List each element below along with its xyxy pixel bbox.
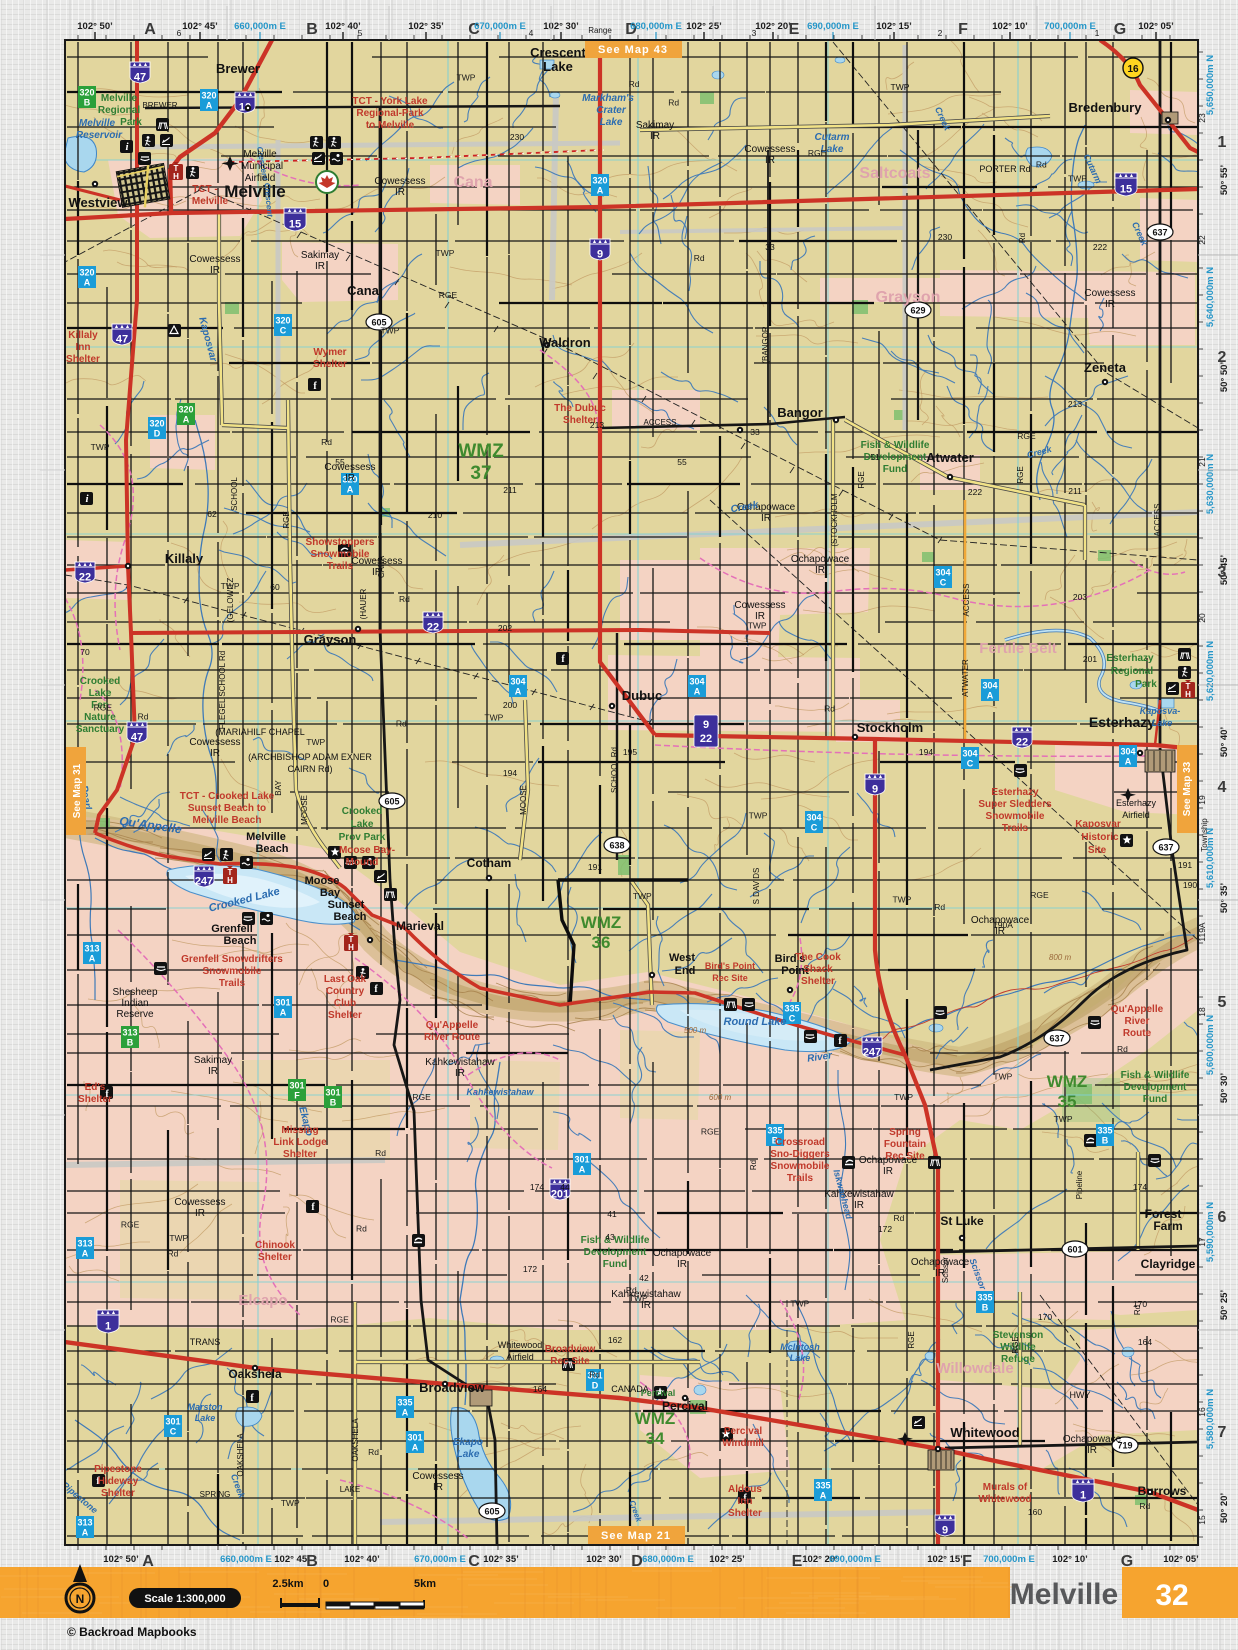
svg-text:TWP: TWP <box>1054 1114 1073 1124</box>
svg-text:23: 23 <box>1197 113 1207 123</box>
svg-text:Grenfell Snowdrifters: Grenfell Snowdrifters <box>181 954 283 965</box>
svg-text:HWY: HWY <box>1070 1390 1091 1400</box>
svg-text:SPRING: SPRING <box>200 1490 231 1499</box>
svg-text:301: 301 <box>275 998 290 1008</box>
svg-text:St Luke: St Luke <box>940 1214 984 1228</box>
svg-text:Trails: Trails <box>787 1173 814 1184</box>
svg-text:Esterhazy: Esterhazy <box>1116 798 1157 808</box>
svg-text:Lake: Lake <box>195 1413 216 1423</box>
svg-text:Cotham: Cotham <box>467 856 512 870</box>
svg-text:605: 605 <box>484 1507 499 1517</box>
svg-text:22: 22 <box>1016 737 1028 749</box>
svg-text:102° 50’: 102° 50’ <box>77 21 113 32</box>
svg-text:Sakimay: Sakimay <box>636 120 674 131</box>
svg-text:C: C <box>940 578 947 588</box>
svg-text:Fund: Fund <box>1143 1094 1167 1105</box>
svg-text:IR: IR <box>315 261 325 272</box>
svg-text:Rd: Rd <box>396 718 407 728</box>
svg-text:Trails: Trails <box>327 561 354 572</box>
svg-text:A: A <box>694 687 701 697</box>
svg-text:Rd: Rd <box>356 1224 367 1234</box>
svg-text:174: 174 <box>530 1182 544 1192</box>
svg-text:162: 162 <box>608 1335 622 1345</box>
svg-text:50° 25’: 50° 25’ <box>1219 1290 1230 1320</box>
svg-text:Rd: Rd <box>1139 1501 1150 1511</box>
svg-text:6: 6 <box>177 28 182 38</box>
svg-text:Grayson: Grayson <box>876 289 941 306</box>
svg-text:0: 0 <box>323 1578 329 1590</box>
svg-text:Cana: Cana <box>453 174 492 191</box>
svg-text:(HAUER: (HAUER <box>359 588 368 619</box>
svg-text:TWP: TWP <box>169 1233 188 1243</box>
svg-text:Cowessess: Cowessess <box>189 737 240 748</box>
svg-text:Airfield: Airfield <box>245 173 276 184</box>
svg-text:McIntosh: McIntosh <box>780 1342 820 1352</box>
svg-text:River: River <box>1124 1016 1149 1027</box>
svg-text:Whitewood: Whitewood <box>950 1425 1019 1440</box>
svg-text:TWP: TWP <box>633 891 652 901</box>
svg-text:638: 638 <box>609 841 624 851</box>
svg-text:9: 9 <box>942 1525 948 1537</box>
svg-text:SCHOOL: SCHOOL <box>230 477 239 511</box>
svg-text:Missing: Missing <box>281 1125 318 1136</box>
svg-text:A: A <box>89 954 96 964</box>
svg-text:Rec Site: Rec Site <box>550 1356 590 1367</box>
svg-text:Melville: Melville <box>1010 1578 1118 1611</box>
svg-text:50° 55’: 50° 55’ <box>1219 165 1230 195</box>
svg-text:Nature: Nature <box>84 712 116 723</box>
svg-text:304: 304 <box>689 677 704 687</box>
svg-text:700,000m E: 700,000m E <box>1044 21 1096 32</box>
svg-text:50° 40’: 50° 40’ <box>1219 727 1230 757</box>
svg-text:Cowessess: Cowessess <box>324 462 375 473</box>
svg-text:Sanctuary: Sanctuary <box>76 724 125 735</box>
svg-text:Shelter: Shelter <box>328 1010 362 1021</box>
svg-text:230: 230 <box>510 132 524 142</box>
svg-text:Crater: Crater <box>596 105 627 116</box>
svg-text:670,000m E: 670,000m E <box>414 1554 466 1565</box>
svg-text:Beach: Beach <box>255 843 288 855</box>
svg-text:TWP: TWP <box>993 1072 1012 1082</box>
svg-text:500 m: 500 m <box>684 1026 707 1035</box>
svg-text:Kahkewistahaw: Kahkewistahaw <box>425 1057 495 1068</box>
svg-text:Ochapowace: Ochapowace <box>653 1248 712 1259</box>
svg-text:A: A <box>820 1491 827 1501</box>
svg-text:F: F <box>958 21 968 38</box>
svg-text:Melville: Melville <box>101 93 138 104</box>
svg-text:ACCESS: ACCESS <box>962 584 971 617</box>
svg-text:Rd: Rd <box>694 253 705 263</box>
svg-text:Shack: Shack <box>803 964 833 975</box>
svg-text:Fish & Wildlife: Fish & Wildlife <box>1121 1070 1190 1081</box>
svg-text:H: H <box>227 876 233 885</box>
svg-text:SCHOOL Rd: SCHOOL Rd <box>610 747 619 793</box>
svg-text:Bay: Bay <box>320 887 341 899</box>
svg-text:Cowessess: Cowessess <box>734 600 785 611</box>
svg-text:47: 47 <box>116 334 128 346</box>
svg-text:Shelter: Shelter <box>101 1488 135 1499</box>
svg-text:660,000m E: 660,000m E <box>234 21 286 32</box>
svg-text:164: 164 <box>1138 1337 1152 1347</box>
svg-text:Aldous: Aldous <box>728 1484 762 1495</box>
svg-text:172: 172 <box>523 1264 537 1274</box>
svg-text:S DAVIDS: S DAVIDS <box>752 868 761 905</box>
svg-text:601: 601 <box>1067 1245 1082 1255</box>
svg-text:IR: IR <box>677 1259 687 1270</box>
svg-text:Melville: Melville <box>192 196 229 207</box>
svg-text:304: 304 <box>806 813 821 823</box>
svg-text:102° 05’: 102° 05’ <box>1163 1554 1199 1565</box>
svg-text:(ARCHBISHOP ADAM EXNER: (ARCHBISHOP ADAM EXNER <box>248 752 372 762</box>
svg-text:Burrows: Burrows <box>1138 1484 1187 1498</box>
svg-text:Qu'Appelle: Qu'Appelle <box>1111 1004 1164 1015</box>
svg-text:Percival: Percival <box>724 1426 763 1437</box>
svg-text:Lake: Lake <box>89 688 112 699</box>
svg-text:A: A <box>412 1443 419 1453</box>
svg-text:TWP: TWP <box>91 442 110 452</box>
svg-text:Lake: Lake <box>457 1449 480 1460</box>
svg-text:50° 30’: 50° 30’ <box>1219 1073 1230 1103</box>
svg-text:222: 222 <box>1093 242 1107 252</box>
svg-text:Dubuc: Dubuc <box>622 688 662 703</box>
svg-text:TWP: TWP <box>484 712 503 722</box>
svg-text:50° 35’: 50° 35’ <box>1219 883 1230 913</box>
svg-text:IR: IR <box>433 1482 443 1493</box>
svg-text:22: 22 <box>79 572 91 584</box>
svg-text:42: 42 <box>639 1273 649 1283</box>
svg-text:Regional: Regional <box>98 105 140 116</box>
svg-text:Shelter: Shelter <box>801 976 835 987</box>
svg-text:5,600,000m N: 5,600,000m N <box>1205 1015 1216 1075</box>
svg-text:Melville: Melville <box>224 182 285 201</box>
svg-text:IR: IR <box>455 1068 465 1079</box>
svg-text:2: 2 <box>1218 349 1227 366</box>
svg-text:Rec Site: Rec Site <box>712 973 748 983</box>
svg-text:Melville: Melville <box>246 831 286 843</box>
svg-text:50° 20’: 50° 20’ <box>1219 1493 1230 1523</box>
svg-text:Shelter: Shelter <box>283 1149 317 1160</box>
svg-text:Beach: Beach <box>333 911 366 923</box>
svg-text:BAY: BAY <box>274 780 283 796</box>
svg-text:RGE: RGE <box>94 703 113 713</box>
svg-text:RGE: RGE <box>412 1092 431 1102</box>
svg-text:15: 15 <box>289 219 301 231</box>
svg-text:F: F <box>294 1091 300 1101</box>
svg-text:WMZ: WMZ <box>635 1409 676 1428</box>
svg-text:Chinook: Chinook <box>255 1240 295 1251</box>
svg-text:47: 47 <box>131 732 143 744</box>
svg-text:D: D <box>592 1381 599 1391</box>
svg-text:5,650,000m N: 5,650,000m N <box>1205 55 1216 115</box>
svg-text:5km: 5km <box>414 1578 436 1590</box>
svg-text:Rd: Rd <box>749 1160 758 1170</box>
svg-text:160: 160 <box>1028 1507 1042 1517</box>
svg-text:222: 222 <box>968 487 982 497</box>
svg-text:B: B <box>330 1098 337 1108</box>
svg-text:Shelter: Shelter <box>78 1094 112 1105</box>
svg-text:Bird's Point: Bird's Point <box>705 961 755 971</box>
svg-text:Kahkewistahaw: Kahkewistahaw <box>466 1087 534 1097</box>
svg-text:203: 203 <box>1073 592 1087 602</box>
svg-text:Sunset: Sunset <box>328 899 365 911</box>
svg-text:B: B <box>84 98 91 108</box>
svg-text:B: B <box>1102 1136 1109 1146</box>
svg-text:TRANS: TRANS <box>190 1337 221 1347</box>
svg-text:Whitewood: Whitewood <box>498 1340 543 1350</box>
svg-text:335: 335 <box>977 1293 992 1303</box>
svg-text:62: 62 <box>207 509 217 519</box>
svg-text:Fund: Fund <box>603 1259 627 1270</box>
svg-text:Rd: Rd <box>668 98 679 108</box>
svg-text:A: A <box>82 1249 89 1259</box>
svg-text:5,580,000m N: 5,580,000m N <box>1205 1389 1216 1449</box>
svg-text:172: 172 <box>878 1224 892 1234</box>
svg-text:Rd: Rd <box>626 1285 637 1295</box>
svg-text:4: 4 <box>1218 779 1227 796</box>
svg-text:TWP: TWP <box>892 895 911 905</box>
svg-text:Esterhazy: Esterhazy <box>1089 714 1155 730</box>
svg-text:Farm: Farm <box>1153 1219 1182 1233</box>
svg-text:Reserve: Reserve <box>116 1009 154 1020</box>
svg-text:5: 5 <box>1218 994 1227 1011</box>
svg-text:Stockholm: Stockholm <box>857 720 923 735</box>
svg-text:102° 35’: 102° 35’ <box>483 1554 519 1565</box>
svg-text:Windmill: Windmill <box>722 1438 764 1449</box>
svg-text:51: 51 <box>870 452 880 462</box>
svg-text:Airfield: Airfield <box>1122 810 1150 820</box>
svg-text:102° 20’: 102° 20’ <box>755 21 791 32</box>
svg-text:320: 320 <box>79 268 94 278</box>
svg-text:194: 194 <box>919 747 933 757</box>
svg-text:70: 70 <box>80 647 90 657</box>
svg-text:TWP: TWP <box>790 1298 809 1308</box>
svg-text:Rd: Rd <box>934 902 945 912</box>
svg-text:Sno-Diggers: Sno-Diggers <box>770 1149 830 1160</box>
svg-text:Rd: Rd <box>375 1148 386 1158</box>
svg-text:Shesheep: Shesheep <box>112 987 157 998</box>
svg-text:Rec Site: Rec Site <box>885 1151 925 1162</box>
svg-text:Country: Country <box>326 986 365 997</box>
svg-text:Rd: Rd <box>138 712 149 722</box>
svg-text:Hideway: Hideway <box>98 1476 139 1487</box>
svg-text:(STOCKHOLM: (STOCKHOLM <box>830 493 839 547</box>
svg-text:304: 304 <box>510 677 525 687</box>
svg-text:Clayridge: Clayridge <box>1141 1257 1196 1271</box>
svg-text:CAIRN Rd): CAIRN Rd) <box>287 764 332 774</box>
svg-text:320: 320 <box>201 91 216 101</box>
svg-text:32: 32 <box>1155 1579 1188 1612</box>
svg-text:A: A <box>84 278 91 288</box>
svg-text:Range: Range <box>588 26 612 35</box>
svg-text:Rd: Rd <box>1018 233 1027 243</box>
svg-text:Rd: Rd <box>824 704 835 714</box>
svg-text:Shelter: Shelter <box>728 1508 762 1519</box>
svg-text:320: 320 <box>275 316 290 326</box>
svg-text:Murals of: Murals of <box>983 1482 1028 1493</box>
svg-text:55: 55 <box>677 457 687 467</box>
svg-text:IR: IR <box>210 748 220 759</box>
svg-text:Regional-Park: Regional-Park <box>356 108 424 119</box>
svg-text:Snowmobile: Snowmobile <box>203 966 262 977</box>
svg-text:A: A <box>579 1165 586 1175</box>
svg-text:Cowessess: Cowessess <box>189 254 240 265</box>
svg-text:7: 7 <box>1218 1424 1227 1441</box>
svg-text:213: 213 <box>1068 399 1082 409</box>
svg-text:313: 313 <box>122 1028 137 1038</box>
svg-text:Showstoppers: Showstoppers <box>306 537 375 548</box>
svg-text:to Melville: to Melville <box>366 120 415 131</box>
svg-text:WMZ: WMZ <box>458 441 504 462</box>
svg-text:1: 1 <box>1218 134 1227 151</box>
svg-text:Prov Park: Prov Park <box>339 832 386 843</box>
svg-text:Scale 1:300,000: Scale 1:300,000 <box>144 1593 225 1605</box>
svg-text:See Map 33: See Map 33 <box>1182 761 1193 816</box>
svg-text:RGE: RGE <box>808 148 827 158</box>
svg-text:Municipal: Municipal <box>241 161 283 172</box>
svg-text:3: 3 <box>1218 564 1227 581</box>
svg-text:Lake: Lake <box>1152 718 1173 728</box>
svg-text:Qu'Appelle: Qu'Appelle <box>426 1020 479 1031</box>
svg-text:The Cook: The Cook <box>795 952 841 963</box>
svg-text:637: 637 <box>1049 1034 1064 1044</box>
svg-text:A: A <box>183 415 190 425</box>
svg-text:335: 335 <box>1097 1126 1112 1136</box>
svg-text:A: A <box>402 1408 409 1418</box>
svg-text:202: 202 <box>498 623 512 633</box>
svg-text:60: 60 <box>270 582 280 592</box>
svg-text:OAKSHELA: OAKSHELA <box>351 1418 360 1462</box>
svg-text:A: A <box>206 101 213 111</box>
svg-text:102° 05’: 102° 05’ <box>1138 21 1174 32</box>
svg-text:Waldron: Waldron <box>539 335 591 350</box>
svg-text:Cutarm: Cutarm <box>814 132 849 143</box>
svg-text:ACCESS: ACCESS <box>644 418 677 427</box>
svg-text:H: H <box>173 172 179 181</box>
svg-text:320: 320 <box>592 176 607 186</box>
svg-text:A: A <box>1125 757 1132 767</box>
svg-text:RGE: RGE <box>1011 1336 1020 1353</box>
svg-text:Kaposvar: Kaposvar <box>1075 819 1121 830</box>
svg-text:Rd: Rd <box>1036 159 1047 169</box>
svg-text:Killaly: Killaly <box>68 330 98 341</box>
svg-text:41: 41 <box>607 1209 617 1219</box>
svg-text:E: E <box>789 21 800 38</box>
svg-text:C: C <box>280 326 287 336</box>
svg-text:301: 301 <box>407 1433 422 1443</box>
svg-text:320: 320 <box>178 405 193 415</box>
svg-text:TCT -: TCT - <box>192 184 218 195</box>
svg-text:IR: IR <box>761 513 771 524</box>
svg-text:Ochapowace: Ochapowace <box>791 554 850 565</box>
svg-text:22: 22 <box>1197 235 1207 245</box>
svg-text:Snowmobile: Snowmobile <box>771 1161 830 1172</box>
svg-text:RGE: RGE <box>1030 890 1049 900</box>
svg-text:170: 170 <box>1133 1299 1147 1309</box>
svg-text:304: 304 <box>962 749 977 759</box>
svg-text:(MARIAHILF CHAPEL: (MARIAHILF CHAPEL <box>215 727 305 737</box>
svg-text:22: 22 <box>700 733 712 745</box>
svg-text:Link Lodge: Link Lodge <box>273 1137 327 1148</box>
svg-text:Rd: Rd <box>168 1248 179 1258</box>
svg-text:TWP: TWP <box>306 737 325 747</box>
svg-text:Crescent: Crescent <box>530 45 586 60</box>
svg-text:RGE: RGE <box>1016 466 1025 483</box>
svg-text:Mound: Mound <box>346 857 379 868</box>
svg-text:Fountain: Fountain <box>884 1139 926 1150</box>
svg-text:18: 18 <box>1197 1007 1207 1017</box>
svg-text:Zeneta: Zeneta <box>1084 360 1127 375</box>
svg-text:Fund: Fund <box>883 464 907 475</box>
svg-text:301: 301 <box>325 1088 340 1098</box>
svg-text:Last Oak: Last Oak <box>324 974 367 985</box>
svg-text:WMZ: WMZ <box>1047 1072 1088 1091</box>
svg-text:See Map 21: See Map 21 <box>601 1530 671 1542</box>
svg-text:Cowessess: Cowessess <box>744 144 795 155</box>
svg-text:B: B <box>306 21 318 38</box>
svg-text:16: 16 <box>1127 64 1139 75</box>
svg-text:Broadview: Broadview <box>545 1344 596 1355</box>
svg-text:34: 34 <box>646 1429 665 1448</box>
svg-text:195: 195 <box>623 747 637 757</box>
svg-text:201: 201 <box>1083 654 1097 664</box>
svg-text:102° 40’: 102° 40’ <box>344 1554 380 1565</box>
svg-text:Bangor: Bangor <box>777 405 823 420</box>
svg-text:Kahkewistahaw: Kahkewistahaw <box>824 1189 894 1200</box>
svg-text:313: 313 <box>77 1518 92 1528</box>
svg-text:102° 15’: 102° 15’ <box>876 21 912 32</box>
svg-text:Cana: Cana <box>347 283 380 298</box>
svg-text:Rd: Rd <box>1117 1044 1128 1054</box>
svg-text:Moose Bay-: Moose Bay- <box>339 845 395 856</box>
svg-text:ATWATER: ATWATER <box>961 659 970 697</box>
svg-text:191: 191 <box>588 862 602 872</box>
svg-text:TWP: TWP <box>891 82 910 92</box>
svg-text:Melville Beach: Melville Beach <box>193 815 262 826</box>
svg-text:TCT - Crooked Lake: TCT - Crooked Lake <box>180 791 275 802</box>
svg-text:304: 304 <box>935 568 950 578</box>
svg-text:TWP: TWP <box>1068 173 1087 183</box>
svg-text:304: 304 <box>1120 747 1135 757</box>
svg-text:Melville: Melville <box>243 149 277 160</box>
svg-text:191: 191 <box>1178 860 1192 870</box>
svg-text:629: 629 <box>910 306 925 316</box>
svg-text:TWP: TWP <box>281 1498 300 1508</box>
svg-text:22: 22 <box>427 622 439 634</box>
svg-text:Rd: Rd <box>894 1213 905 1223</box>
svg-text:Esterhazy: Esterhazy <box>991 787 1039 798</box>
svg-text:Sakimay: Sakimay <box>301 250 339 261</box>
svg-text:5,640,000m N: 5,640,000m N <box>1205 267 1216 327</box>
svg-text:800 m: 800 m <box>1049 953 1072 962</box>
svg-text:A: A <box>82 1528 89 1538</box>
svg-text:N: N <box>76 1592 85 1606</box>
svg-text:690,000m E: 690,000m E <box>807 21 859 32</box>
svg-text:19: 19 <box>1197 795 1207 805</box>
svg-text:301: 301 <box>289 1081 304 1091</box>
svg-text:Markham's: Markham's <box>582 93 634 104</box>
svg-text:TWP: TWP <box>436 248 455 258</box>
svg-text:Snowmobile: Snowmobile <box>986 811 1045 822</box>
svg-text:Spring: Spring <box>889 1127 921 1138</box>
svg-text:335: 335 <box>397 1398 412 1408</box>
svg-text:LAKE: LAKE <box>340 1485 360 1494</box>
svg-text:Rd: Rd <box>629 79 640 89</box>
svg-text:Trails: Trails <box>1002 823 1029 834</box>
svg-text:211: 211 <box>503 485 517 495</box>
svg-text:680,000m E: 680,000m E <box>630 21 682 32</box>
svg-text:IR: IR <box>208 1066 218 1077</box>
svg-text:IR: IR <box>395 187 405 198</box>
